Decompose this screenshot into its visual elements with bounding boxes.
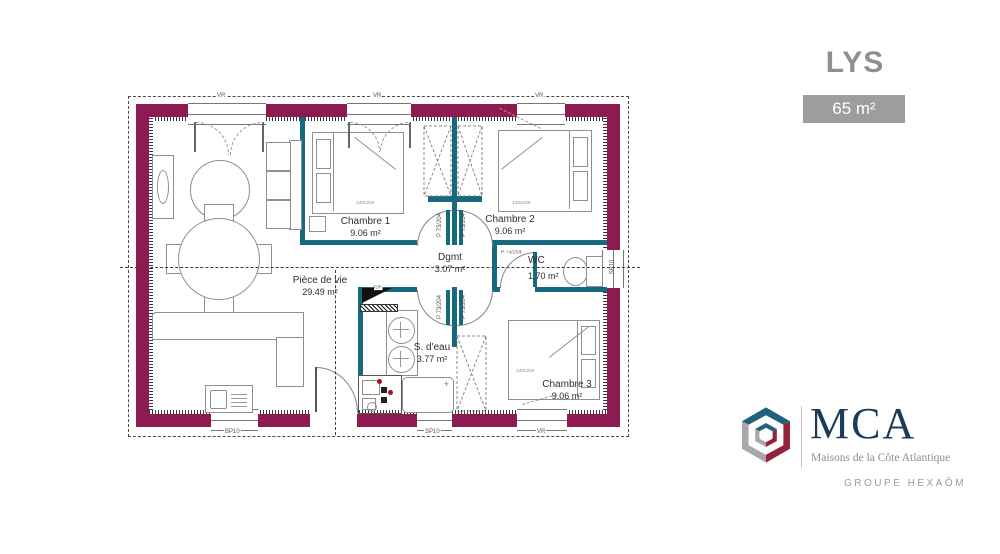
window-chambre2-top — [517, 103, 565, 125]
dining-table — [178, 218, 260, 300]
window-label-sp10-right: SP10 — [609, 260, 615, 275]
pillow — [573, 137, 588, 167]
room-label-dgmt: Dgmt 3.07 m² — [415, 252, 485, 274]
bed-sheet-line — [569, 131, 570, 209]
idf-marker — [362, 288, 392, 303]
room-name: Dgmt — [415, 252, 485, 264]
window-chambre3-bottom — [517, 409, 567, 431]
basin — [388, 317, 415, 344]
basin-cross — [400, 322, 401, 338]
tech-circle — [367, 402, 377, 412]
window-pane — [211, 420, 258, 421]
window-label-vr: VR — [216, 93, 226, 99]
window-label-vr-bottom: VR — [536, 429, 546, 435]
room-name: Chambre 3 — [528, 379, 606, 391]
room-name: WC — [528, 255, 568, 267]
window-pane — [517, 420, 567, 421]
logo-group-line: GROUPE HEXAÔM — [811, 478, 966, 489]
sideboard — [152, 155, 174, 219]
door-leaf-sdeau — [446, 290, 450, 325]
room-area: 3.07 m² — [415, 264, 485, 274]
window-label-sp10: SP10 — [424, 429, 441, 435]
room-area: 1.70 m² — [528, 267, 568, 281]
room-area: 3.77 m² — [404, 354, 460, 364]
bed-size-label: 140x200 — [512, 201, 530, 206]
mca-hexagon-icon — [736, 405, 796, 471]
kitchen-counter-top — [152, 312, 304, 340]
window-chambre1-top — [347, 103, 411, 125]
room-area: 29.49 m² — [276, 287, 364, 297]
sofa-cushion — [266, 142, 291, 171]
door-label: P 73/204 — [437, 213, 443, 237]
room-name: Pièce de vie — [276, 275, 364, 287]
sink-drainer — [231, 391, 247, 407]
window-pane — [517, 114, 565, 115]
window-pane — [347, 114, 411, 115]
window-label-vr: VR — [372, 93, 382, 99]
logo-block: MCA Maisons de la Côte Atlantique GROUPE… — [730, 400, 970, 500]
basin-cross — [393, 329, 409, 330]
door-leaf-entry — [315, 367, 317, 412]
shower-tray: + — [402, 377, 454, 413]
floorplan-page: + Chambre 1 9.06 m² — [0, 0, 1000, 554]
window-pane — [188, 114, 266, 115]
logo-divider — [801, 406, 802, 468]
door-leaf-chambre1 — [446, 210, 450, 245]
bed-size-label: 140x200 — [356, 201, 374, 206]
wardrobe-chambre1 — [423, 125, 452, 197]
sofa-cushion — [266, 171, 291, 200]
tech-block — [381, 397, 387, 403]
pillow — [316, 173, 331, 203]
partition-wc-left — [492, 240, 497, 292]
window-pane — [417, 420, 452, 421]
bed-fold-line — [501, 137, 543, 170]
kitchen-sink-unit — [205, 385, 253, 413]
kitchen-counter-right — [276, 337, 304, 387]
window-label-bp10: BP10 — [224, 429, 241, 435]
sideboard-oval — [157, 170, 169, 204]
window-label-vr: VR — [534, 93, 544, 99]
partition-chambre1-hall — [300, 240, 417, 245]
partition-wc-bottom — [535, 287, 607, 292]
tech-dot-red — [377, 379, 382, 384]
bed-sheet-line — [333, 133, 334, 211]
pillow — [573, 171, 588, 201]
sink-bowl — [210, 390, 227, 409]
door-label: P 73/204 — [461, 295, 467, 319]
door-label: P 73/204 — [437, 295, 443, 319]
logo-wordmark: MCA — [810, 400, 916, 448]
wardrobe-chambre3 — [456, 335, 487, 412]
logo-subtitle: Maisons de la Côte Atlantique — [811, 452, 966, 464]
room-label-wc: WC 1.70 m² — [528, 255, 568, 281]
room-label-chambre1: Chambre 1 9.06 m² — [318, 216, 413, 238]
room-label-piece-de-vie: Pièce de vie 29.49 m² — [276, 275, 364, 297]
room-label-chambre2: Chambre 2 9.06 m² — [468, 214, 552, 236]
tech-block — [381, 387, 387, 393]
room-name: S. d'eau — [404, 342, 460, 354]
room-area: 9.06 m² — [528, 391, 606, 401]
page-title: LYS — [800, 46, 910, 80]
room-name: Chambre 2 — [468, 214, 552, 226]
room-area: 9.06 m² — [318, 228, 413, 238]
partition-chambre2-hall — [492, 240, 607, 245]
wardrobe-chambre2 — [457, 125, 483, 197]
tech-closet — [358, 375, 402, 414]
idf-hatch — [360, 304, 398, 312]
toilet-cistern — [586, 256, 603, 287]
tech-dot-red — [388, 390, 393, 395]
wall-left — [136, 104, 149, 427]
basin-cross — [400, 351, 401, 367]
door-label: P 73/204 — [461, 213, 467, 237]
room-name: Chambre 1 — [318, 216, 413, 228]
area-badge: 65 m² — [803, 95, 905, 123]
sofa-cushion — [266, 200, 291, 229]
bed-chambre2 — [498, 130, 592, 212]
idf-label: IDF — [374, 285, 382, 290]
partition-hall-stub — [492, 287, 500, 292]
room-label-chambre3: Chambre 3 9.06 m² — [528, 379, 606, 401]
shower-drain: + — [444, 379, 449, 389]
room-label-sdeau: S. d'eau 3.77 m² — [404, 342, 460, 364]
door-label-wc: P 73/204 — [501, 250, 521, 255]
bed-size-label: 140x200 — [516, 369, 534, 374]
room-area: 9.06 m² — [468, 226, 552, 236]
pillow — [316, 139, 331, 169]
